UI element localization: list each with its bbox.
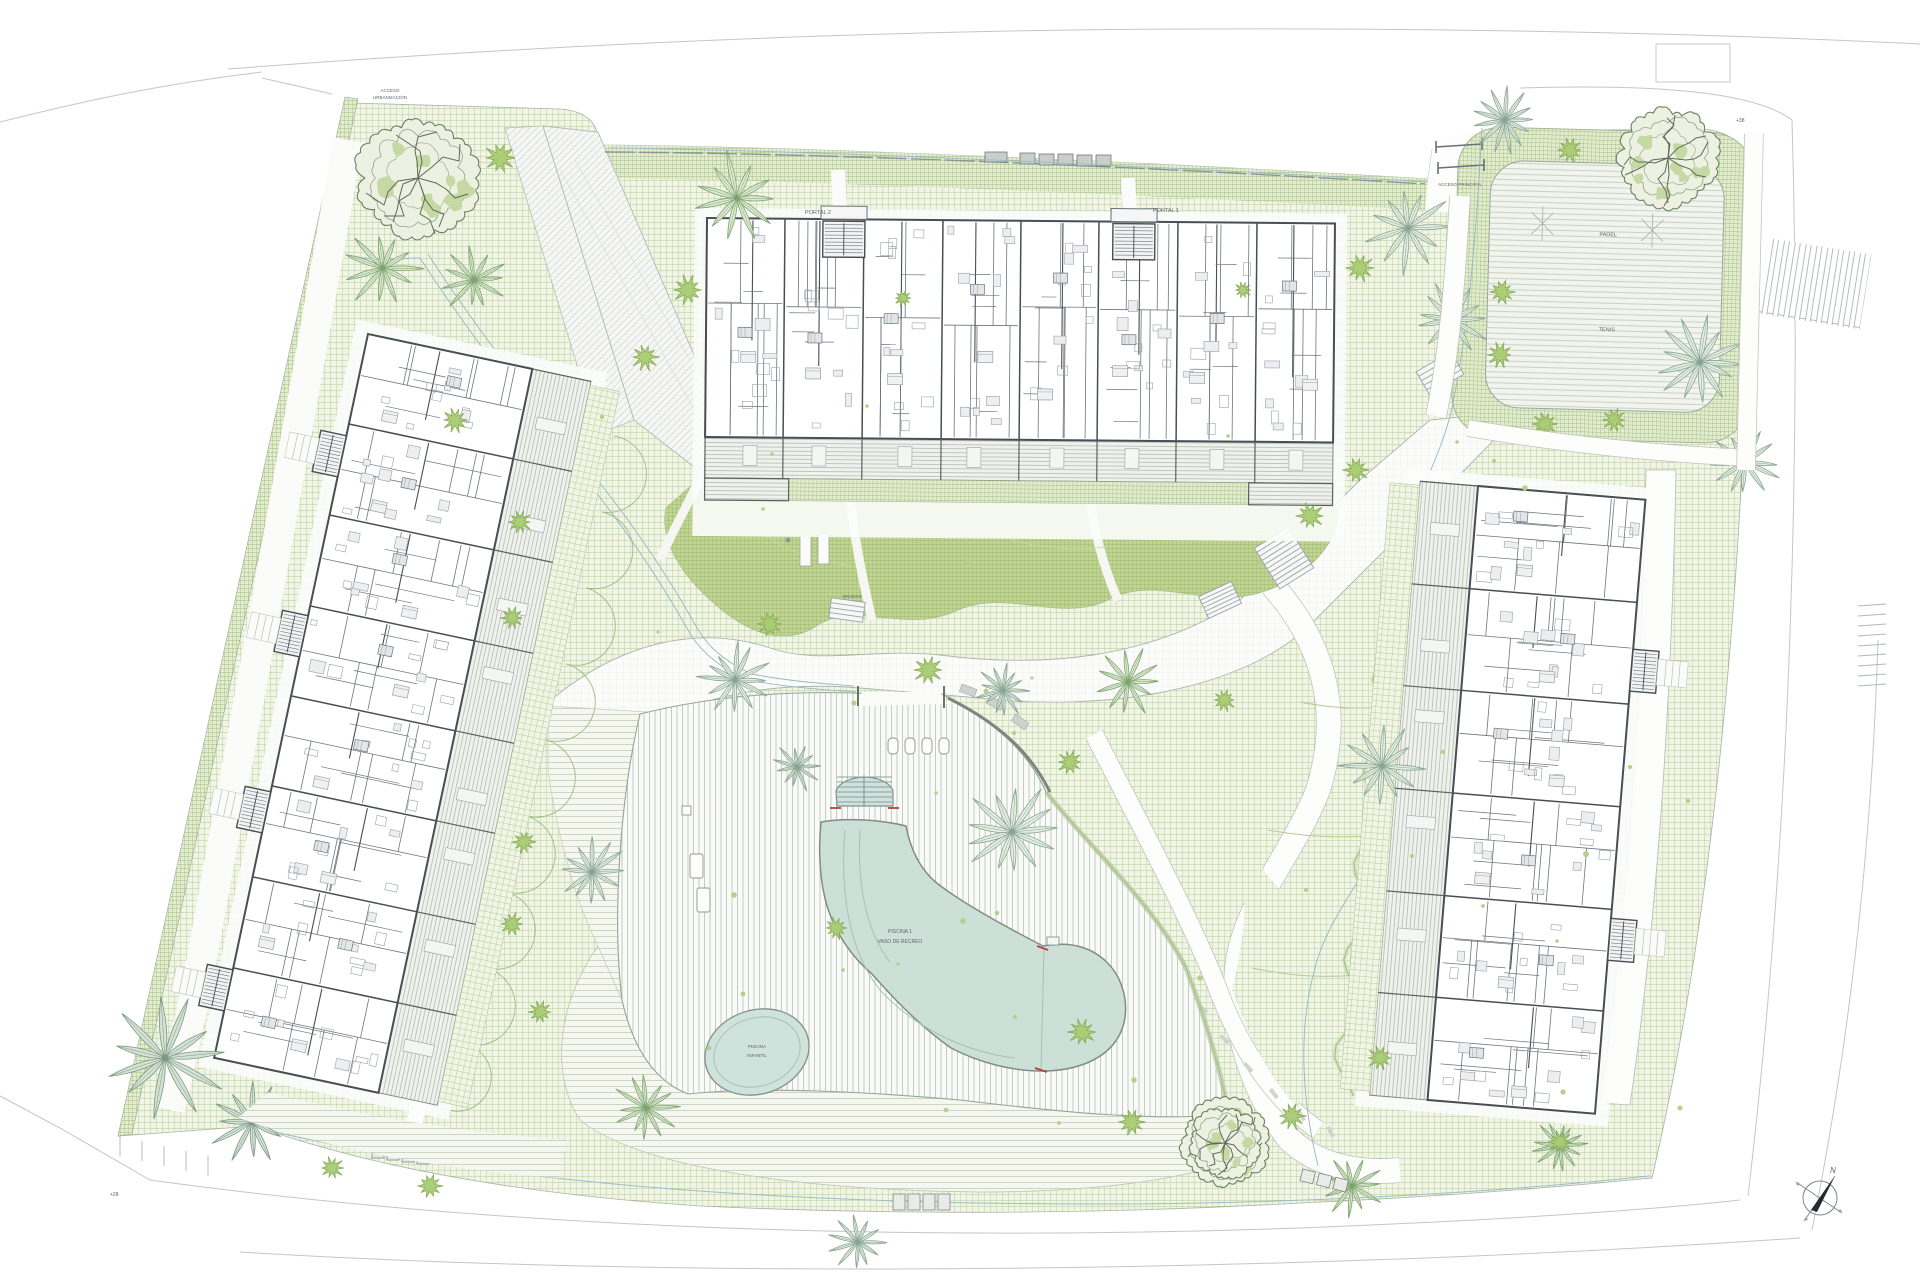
svg-text:INFANTIL: INFANTIL (747, 1053, 767, 1058)
svg-text:TENIS: TENIS (1599, 327, 1616, 333)
svg-text:+28: +28 (110, 1192, 119, 1198)
svg-text:+38: +38 (1736, 118, 1745, 124)
svg-text:PORTAL 1: PORTAL 1 (1153, 208, 1179, 214)
svg-text:ACCESO: ACCESO (380, 88, 400, 93)
svg-text:N: N (1830, 1166, 1836, 1175)
svg-text:PISCINA: PISCINA (748, 1044, 766, 1049)
svg-text:GRADAS: GRADAS (842, 594, 861, 599)
svg-text:ACCESO PRINCIPAL: ACCESO PRINCIPAL (1438, 182, 1482, 187)
svg-text:PORTAL 2: PORTAL 2 (805, 210, 831, 216)
svg-text:PISCINA 1: PISCINA 1 (888, 929, 912, 935)
svg-text:VASO DE RECREO: VASO DE RECREO (878, 939, 923, 945)
svg-text:URBANIZACIÓN: URBANIZACIÓN (373, 94, 407, 100)
svg-text:PADEL: PADEL (1599, 232, 1617, 238)
